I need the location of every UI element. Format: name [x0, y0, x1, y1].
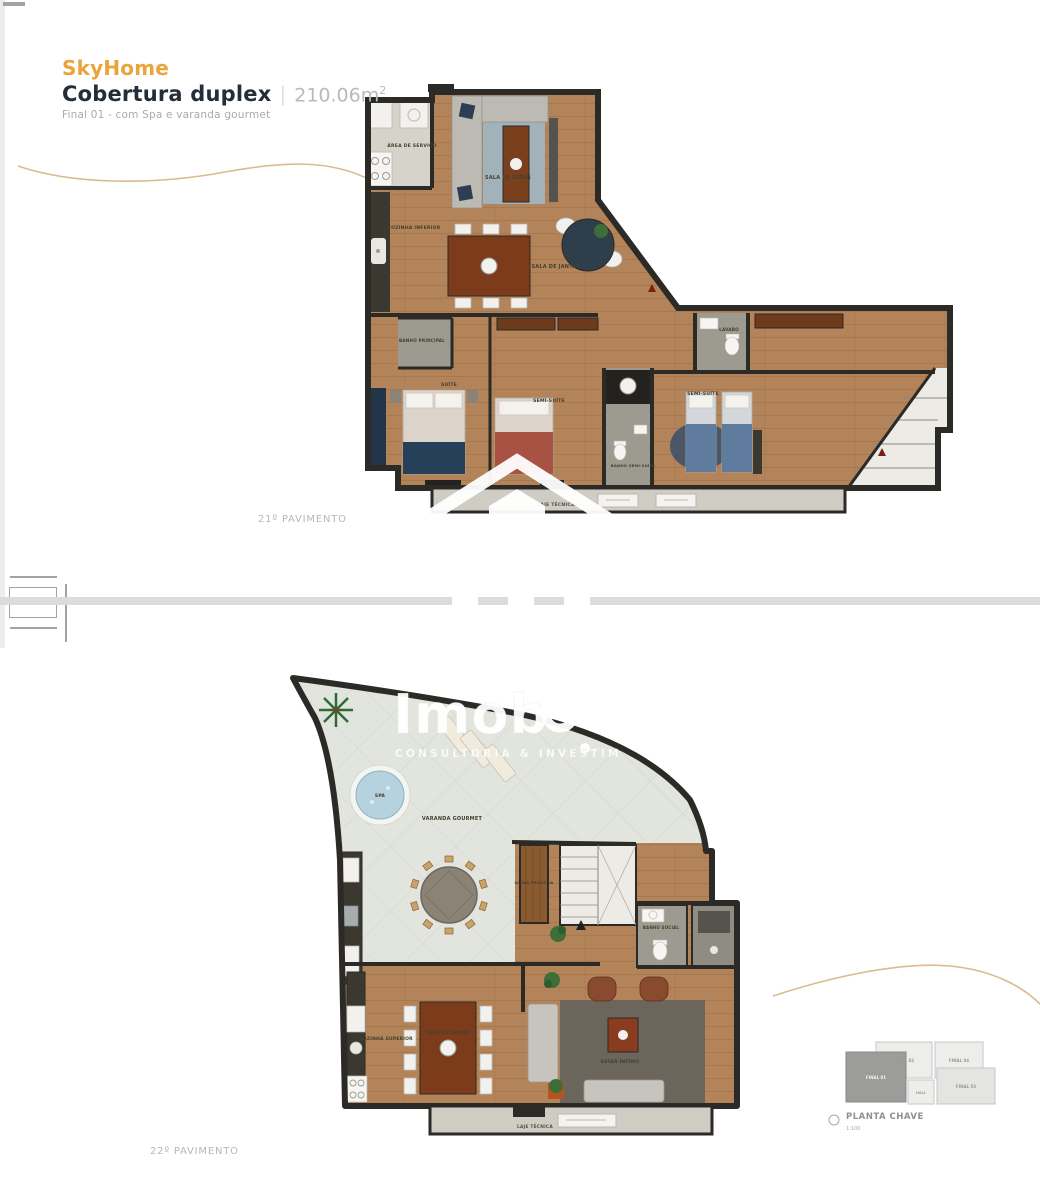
room-label-spa: SPA	[375, 793, 386, 799]
page: SkyHome Cobertura duplex | 210.06m2 Fina…	[0, 0, 1040, 1200]
key-plan-label-hall: HALL	[916, 1091, 927, 1095]
room-label-sala-jantar: SALA DE JANTAR	[531, 264, 580, 270]
service-shaft	[692, 905, 737, 967]
roof-vent	[428, 84, 454, 92]
room-label-sauna: SAUNA PRIVATIVA	[514, 881, 553, 885]
title-row: Cobertura duplex | 210.06m2	[62, 82, 386, 106]
room-label-banho-semi-suite: BANHO SEMI-SUÍTE	[611, 463, 656, 468]
watermark-tagline: CONSULTORIA & INVESTIM	[395, 748, 622, 760]
room-label-banho-principal: BANHO PRINCIPAL	[399, 338, 445, 343]
unit-subtitle: Final 01 - com Spa e varanda gourmet	[62, 109, 386, 121]
floor-plan-2: SPA VARANDA GOURMET SAUNA PRIVATIVA BANH…	[293, 678, 737, 1134]
key-plan-label-final03: FINAL 03	[956, 1084, 976, 1089]
room-label-lavabo: LAVABO	[719, 327, 739, 332]
floor2-caption: 22º PAVIMENTO	[150, 1146, 239, 1157]
room-label-sala-estar: SALA DE ESTAR	[485, 175, 531, 181]
watermark-brand: Imob	[393, 683, 549, 746]
floorplans-graphic: ÁREA DE SERVIÇO SALA DE ESTAR COZINHA IN…	[0, 0, 1040, 1200]
palm-plant	[319, 693, 353, 727]
room-label-banho-social: BANHO SOCIAL	[643, 925, 680, 930]
floor1-caption: 21º PAVIMENTO	[258, 514, 347, 525]
key-plan-label-final01: FINAL 01	[866, 1075, 886, 1080]
floor2-stairs	[560, 845, 636, 925]
page-title: Cobertura duplex	[62, 82, 272, 106]
floor2-laje-tecnica	[430, 1106, 712, 1134]
living-room-furniture	[452, 96, 558, 208]
room-label-sala-jantar-2: SALA DE JANTAR	[426, 1030, 471, 1036]
unit-area: 210.06m2	[294, 84, 386, 106]
imob-watermark: Imob CONSULTORIA & INVESTIM	[393, 683, 622, 760]
title-separator: |	[280, 82, 287, 106]
room-label-cozinha-inferior: COZINHA INFERIOR	[388, 225, 441, 231]
key-plan-label-final02: FINAL 02	[894, 1058, 914, 1063]
room-label-area-servico: ÁREA DE SERVIÇO	[387, 142, 436, 149]
room-label-varanda-gourmet: VARANDA GOURMET	[422, 816, 483, 822]
area-exponent: 2	[379, 84, 386, 97]
brand-name: SkyHome	[62, 56, 386, 80]
key-plan: FINAL 02 FINAL 04 FINAL 01 HALL FINAL 03…	[829, 1042, 995, 1132]
key-plan-title: PLANTA CHAVE	[846, 1112, 924, 1122]
key-plan-marker-icon	[829, 1115, 839, 1125]
watermark-partial-letter	[546, 700, 574, 728]
key-plan-scale: 1:100	[846, 1126, 860, 1132]
banho-social-room	[637, 905, 687, 967]
room-label-cozinha-superior: COZINHA SUPERIOR	[359, 1036, 413, 1042]
key-plan-label-final04: FINAL 04	[949, 1058, 969, 1063]
floor-plan-1: ÁREA DE SERVIÇO SALA DE ESTAR COZINHA IN…	[368, 84, 950, 626]
header: SkyHome Cobertura duplex | 210.06m2 Fina…	[62, 56, 386, 121]
